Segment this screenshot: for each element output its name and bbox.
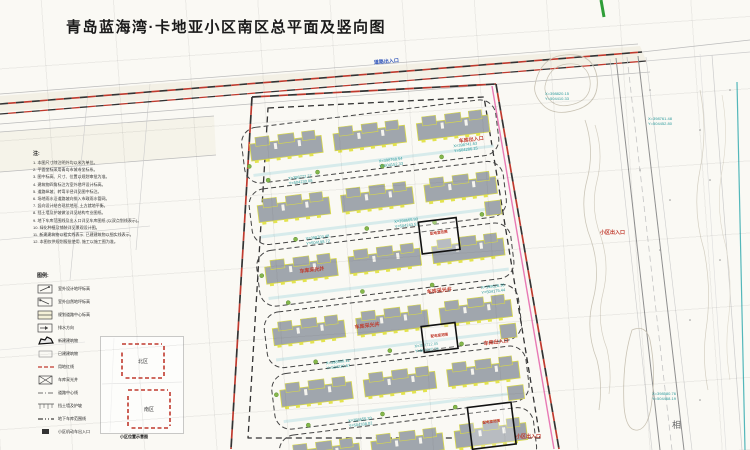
new-building-icon: [37, 335, 55, 347]
legend-label: 道路中心线: [58, 390, 78, 396]
legend-label: 室外设计地坪标高: [58, 286, 90, 292]
drawing-title: 青岛蓝海湾·卡地亚小区南区总平面及竖向图: [66, 16, 386, 37]
road-elevation-icon: [37, 310, 55, 320]
legend-label: 用地红线: [58, 364, 74, 370]
natural-elevation-icon: [37, 297, 55, 307]
legend-row: 室外设计地坪标高: [37, 282, 125, 295]
coordinate-label: X=398703.48Y=504198.72: [305, 233, 331, 246]
note-line: 7. 竖向设计结合现状地形, 土方就地平衡。: [33, 202, 161, 209]
north-road: 道路出入口: [0, 40, 750, 124]
legend-label: 新建建筑物: [58, 338, 78, 344]
community-entrance-label: 小区出入口: [516, 433, 541, 440]
legend-row: 排水方向: [37, 321, 125, 334]
legend-label: 小区机动车出入口: [58, 429, 90, 435]
note-line: 1. 本图尺寸除注明外均以米为单位。: [33, 159, 161, 166]
location-keymap: 北区 南区 小区位置示意图: [100, 336, 184, 440]
drainage-arrow-icon: [37, 323, 55, 333]
note-line: 9. 地下车库范围线及出入口详见车库图纸 (以双点划线表示)。: [33, 217, 161, 224]
coordinate-label: X=398580.76Y=504468.19: [652, 391, 677, 401]
legend-label: 挡土墙及护坡: [58, 403, 82, 409]
community-entrance-label: 小区出入口: [600, 229, 625, 236]
note-line: 4. 建筑物四角标注为室外地坪设计标高。: [33, 181, 161, 188]
coordinate-label: X=398772.27Y=504230.08: [288, 173, 314, 186]
design-elevation-icon: [37, 284, 55, 294]
drawing-sheet: 青岛蓝海湾·卡地亚小区南区总平面及竖向图 注: 1. 本图尺寸除注明外均以米为单…: [0, 0, 750, 450]
building-row-1: [249, 109, 490, 164]
legend-row: 规划道路中心标高: [37, 308, 125, 321]
coordinate-label: X=398665.90Y=504243.51: [394, 216, 420, 229]
green-marker-line: [601, 0, 604, 17]
legend-label: 车库采光井: [58, 377, 78, 383]
note-line: 2. 平面坐标采用青岛市城市坐标系。: [33, 166, 161, 173]
legend-row: 室外自然地坪标高: [37, 295, 125, 308]
coordinate-label: X=398820.15Y=504410.33: [545, 91, 570, 101]
legend-label: 排水方向: [58, 325, 74, 331]
existing-building-icon: [37, 349, 55, 359]
garage-entrance-label: 车库出入口: [483, 337, 509, 347]
note-line: 8. 挡土墙及护坡做法详见结构专业图纸。: [33, 209, 161, 216]
legend-label: 室外自然地坪标高: [58, 299, 90, 305]
legend-header: 图例:: [37, 272, 125, 279]
coordinate-label: X=398761.48Y=504452.80: [648, 116, 673, 126]
coordinate-label: X=398590.12Y=504220.67: [326, 358, 352, 371]
note-line: 5. 道路纵坡、转弯半径详见图中标注。: [33, 188, 161, 195]
legend-label: 规划道路中心标高: [58, 312, 90, 318]
note-line: 11. 新建建筑物以粗实线表示, 已建建筑物以细实线表示。: [33, 231, 161, 238]
road-entrance-label: 道路出入口: [374, 57, 399, 66]
coordinate-label: X=398768.54Y=504152.33: [378, 156, 404, 169]
coordinate-label: X=398628.36Y=504175.44: [481, 282, 507, 295]
coordinate-label: X=398655.20Y=504338.02: [348, 415, 374, 428]
keymap-north-label: 北区: [138, 358, 148, 365]
east-margin-char: 相: [672, 419, 681, 430]
garage-skylight-label: 车库采光井: [427, 286, 453, 296]
road-centerline-icon: [37, 389, 55, 397]
skylight-icon: [37, 375, 55, 385]
note-line: 3. 图中标高、尺寸、位置以规划审批为准。: [33, 173, 161, 180]
keymap-south-label: 南区: [144, 406, 154, 413]
legend-label: 已建建筑物: [58, 351, 78, 357]
site-content: X=398772.27Y=504230.08 X=398768.54Y=5041…: [240, 98, 539, 450]
notes-header: 注:: [33, 150, 161, 157]
garage-outline-icon: [37, 415, 55, 423]
red-line-icon: [37, 363, 55, 371]
keymap-caption: 小区位置示意图: [120, 433, 148, 439]
note-line: 12. 本图仅供规划报批使用, 施工以施工图为准。: [33, 238, 161, 245]
spot-elevation-points: [639, 89, 731, 401]
cyan-edge-line: [737, 82, 745, 450]
garage-entrance-label: 车库出入口: [458, 135, 484, 145]
note-line: 10. 绿化种植及铺装详见景观设计图。: [33, 224, 161, 231]
legend-label: 地下车库范围线: [58, 416, 86, 422]
note-line: 6. 场地雨水沿道路坡向排入市政雨水管网。: [33, 195, 161, 202]
entrance-icon: [37, 427, 55, 436]
slope-icon: [37, 402, 55, 410]
notes-block: 注: 1. 本图尺寸除注明外均以米为单位。 2. 平面坐标采用青岛市城市坐标系。…: [33, 150, 161, 245]
